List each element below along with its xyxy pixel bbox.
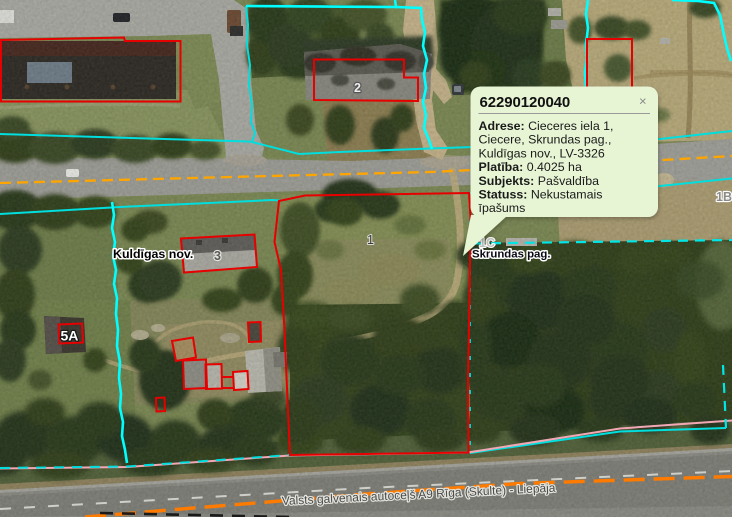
svg-text:Kuldīgas nov.: Kuldīgas nov.: [113, 247, 193, 261]
svg-text:3: 3: [214, 249, 221, 263]
svg-text:1B: 1B: [716, 190, 732, 204]
svg-text:5A: 5A: [61, 328, 79, 344]
svg-text:62290120040: 62290120040: [480, 94, 571, 111]
svg-text:Platība: 0.4025 ha: Platība: 0.4025 ha: [479, 160, 582, 174]
svg-text:×: ×: [639, 94, 647, 109]
svg-text:īpašums: īpašums: [479, 201, 526, 215]
svg-text:Kuldīgas nov., LV-3326: Kuldīgas nov., LV-3326: [479, 146, 605, 160]
svg-text:1: 1: [367, 233, 374, 247]
svg-text:Subjekts: Pašvaldība: Subjekts: Pašvaldība: [479, 174, 600, 188]
svg-text:Skrundas pag.: Skrundas pag.: [472, 249, 551, 261]
svg-text:Statuss: Nekustamais: Statuss: Nekustamais: [479, 188, 603, 202]
svg-text:2: 2: [354, 81, 361, 95]
svg-text:Adrese: Cieceres iela 1,: Adrese: Cieceres iela 1,: [479, 119, 614, 133]
svg-text:Ciecere, Skrundas pag.,: Ciecere, Skrundas pag.,: [479, 133, 612, 147]
